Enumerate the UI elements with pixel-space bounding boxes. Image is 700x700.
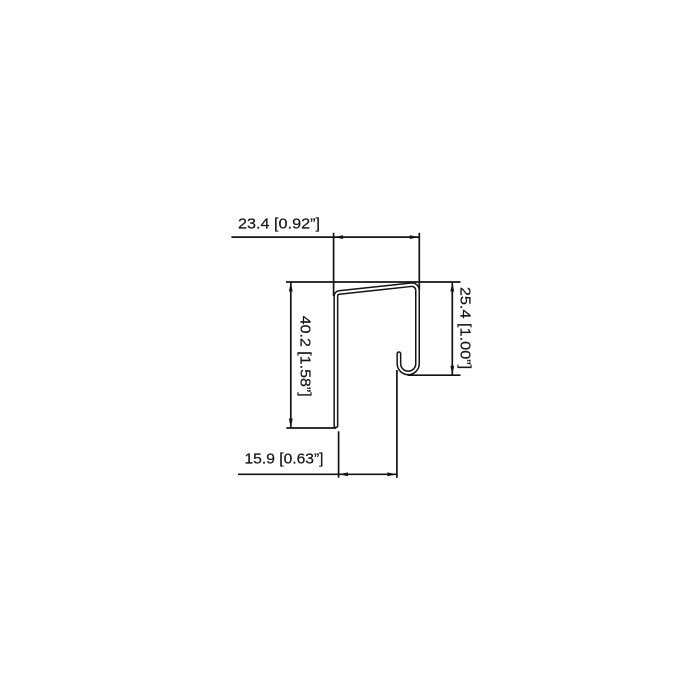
svg-text:25.4 [1.00”]: 25.4 [1.00”] <box>456 287 472 369</box>
svg-text:40.2 [1.58”]: 40.2 [1.58”] <box>296 316 312 397</box>
svg-text:15.9 [0.63”]: 15.9 [0.63”] <box>245 452 324 468</box>
svg-text:23.4 [0.92”]: 23.4 [0.92”] <box>238 217 320 233</box>
